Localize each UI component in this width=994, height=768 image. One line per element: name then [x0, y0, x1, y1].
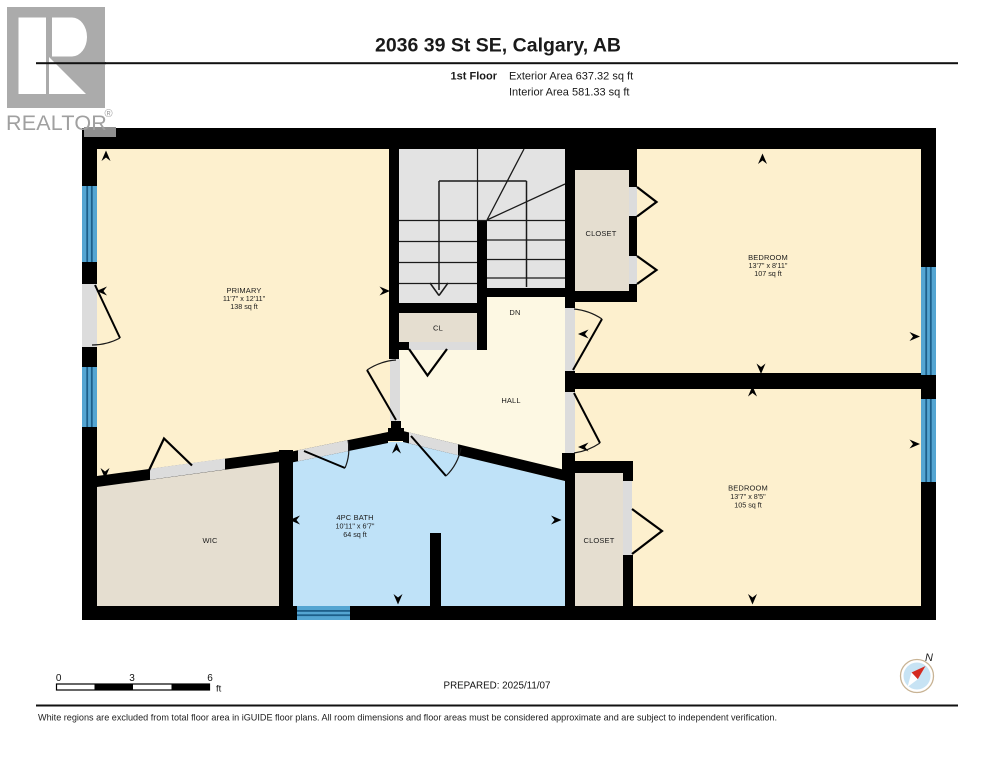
svg-text:PREPARED: 2025/11/07: PREPARED: 2025/11/07 [444, 681, 551, 692]
svg-text:3: 3 [129, 673, 135, 684]
svg-text:WIC: WIC [202, 536, 217, 545]
svg-text:107 sq ft: 107 sq ft [754, 269, 782, 278]
svg-text:2036 39 St SE, Calgary, AB: 2036 39 St SE, Calgary, AB [375, 35, 621, 57]
svg-text:Interior Area 581.33 sq ft: Interior Area 581.33 sq ft [509, 87, 629, 99]
svg-text:6: 6 [207, 673, 213, 684]
svg-text:1st Floor: 1st Floor [451, 71, 498, 83]
svg-text:64 sq ft: 64 sq ft [343, 530, 367, 539]
svg-text:®: ® [105, 108, 113, 120]
svg-text:CLOSET: CLOSET [584, 536, 615, 545]
svg-text:Exterior Area 637.32 sq ft: Exterior Area 637.32 sq ft [509, 71, 633, 83]
svg-text:ft: ft [216, 684, 222, 695]
svg-text:White regions are excluded fro: White regions are excluded from total fl… [38, 713, 777, 723]
svg-text:CLOSET: CLOSET [586, 229, 617, 238]
svg-text:105 sq ft: 105 sq ft [734, 501, 762, 510]
svg-text:CL: CL [433, 324, 443, 333]
svg-text:REALTOR: REALTOR [6, 111, 107, 135]
svg-text:N: N [925, 652, 933, 664]
svg-text:DN: DN [509, 308, 520, 317]
svg-text:138 sq ft: 138 sq ft [230, 302, 258, 311]
svg-text:HALL: HALL [501, 396, 520, 405]
svg-text:0: 0 [56, 673, 62, 684]
